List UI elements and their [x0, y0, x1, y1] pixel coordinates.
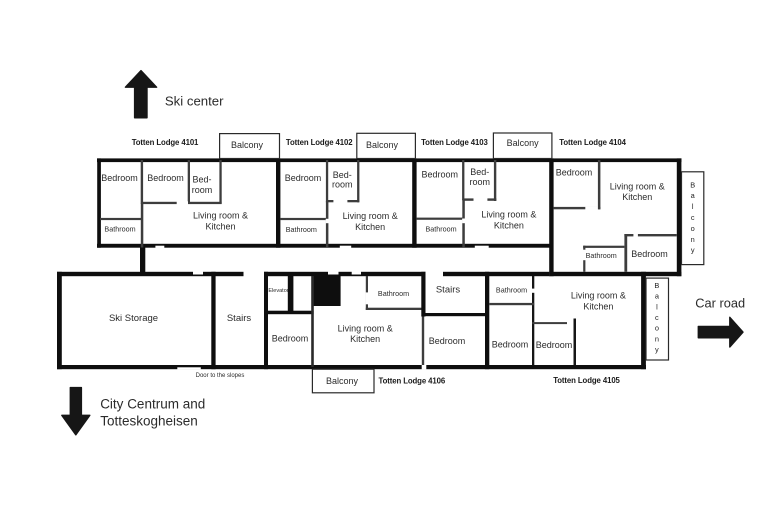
svg-text:Ski center: Ski center: [165, 94, 224, 109]
svg-text:Bedroom: Bedroom: [556, 167, 593, 177]
svg-text:o: o: [691, 224, 695, 233]
svg-text:B: B: [654, 281, 659, 290]
svg-text:Bathroom: Bathroom: [496, 286, 527, 295]
svg-text:Balcony: Balcony: [507, 138, 540, 148]
svg-text:Totten Lodge 4102: Totten Lodge 4102: [286, 138, 353, 147]
svg-text:Bed-room: Bed-room: [192, 175, 213, 195]
svg-text:Bathroom: Bathroom: [104, 225, 135, 234]
svg-text:y: y: [691, 246, 695, 255]
svg-text:Elevator: Elevator: [268, 288, 288, 294]
svg-text:o: o: [655, 324, 659, 333]
svg-text:Car road: Car road: [695, 296, 745, 311]
svg-text:Balcony: Balcony: [231, 140, 264, 150]
svg-text:Balcony: Balcony: [326, 376, 359, 386]
svg-text:Bathroom: Bathroom: [586, 251, 617, 260]
svg-text:y: y: [655, 345, 659, 354]
svg-text:n: n: [691, 235, 695, 244]
svg-text:Ski Storage: Ski Storage: [109, 313, 158, 324]
svg-text:Stairs: Stairs: [436, 285, 461, 296]
svg-text:Totten Lodge 4106: Totten Lodge 4106: [378, 377, 445, 386]
svg-text:c: c: [655, 313, 659, 322]
svg-text:Bathroom: Bathroom: [378, 289, 409, 298]
svg-text:B: B: [690, 180, 695, 189]
svg-text:Bathroom: Bathroom: [426, 224, 457, 233]
svg-text:City Centrum andTotteskogheise: City Centrum andTotteskogheisen: [100, 396, 205, 428]
svg-text:Door to the slopes: Door to the slopes: [196, 373, 245, 379]
svg-text:n: n: [655, 334, 659, 343]
svg-text:Bedroom: Bedroom: [101, 173, 138, 183]
svg-text:Bed-room: Bed-room: [470, 167, 491, 187]
svg-text:Stairs: Stairs: [227, 313, 252, 324]
svg-text:Bedroom: Bedroom: [285, 173, 322, 183]
svg-text:Bedroom: Bedroom: [429, 336, 466, 346]
svg-text:Bedroom: Bedroom: [147, 173, 184, 183]
svg-text:Totten Lodge 4101: Totten Lodge 4101: [132, 138, 199, 147]
svg-text:Bed-room: Bed-room: [332, 170, 353, 190]
svg-text:Totten Lodge 4104: Totten Lodge 4104: [559, 138, 626, 147]
svg-text:Bathroom: Bathroom: [286, 225, 317, 234]
svg-text:Bedroom: Bedroom: [536, 340, 573, 350]
svg-text:Bedroom: Bedroom: [272, 334, 309, 344]
svg-text:c: c: [691, 213, 695, 222]
svg-text:Balcony: Balcony: [366, 140, 399, 150]
svg-text:Totten Lodge 4105: Totten Lodge 4105: [553, 376, 620, 385]
svg-text:Bedroom: Bedroom: [631, 249, 668, 259]
svg-text:Bedroom: Bedroom: [492, 340, 529, 350]
svg-text:Bedroom: Bedroom: [422, 170, 459, 180]
svg-text:Totten Lodge 4103: Totten Lodge 4103: [421, 138, 488, 147]
